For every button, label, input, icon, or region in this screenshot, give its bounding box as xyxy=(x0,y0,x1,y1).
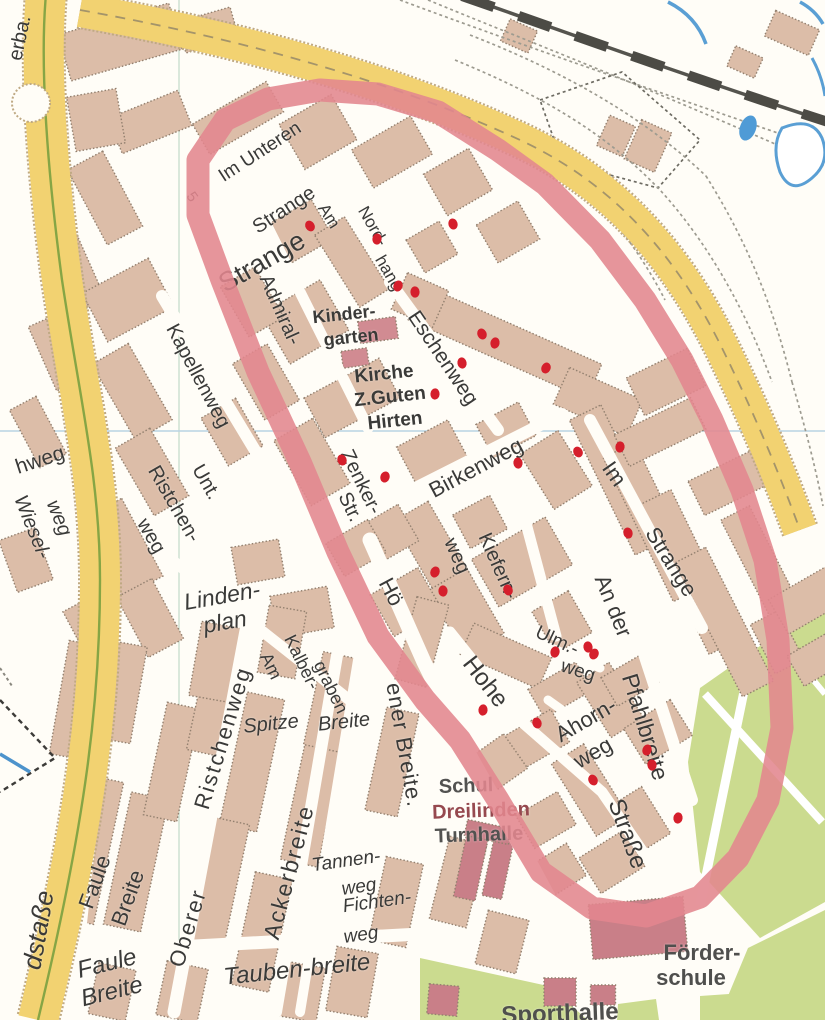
marker-dot xyxy=(502,583,515,597)
marker-dot xyxy=(429,565,442,579)
marker-dot xyxy=(430,388,440,400)
marker-dot xyxy=(531,716,543,730)
marker-dot xyxy=(478,704,488,716)
marker-dot xyxy=(379,470,391,483)
marker-dots xyxy=(303,217,683,824)
marker-dot xyxy=(641,743,653,756)
marker-dot xyxy=(622,526,634,539)
marker-dot xyxy=(513,457,523,469)
marker-dot xyxy=(303,219,317,233)
marker-dot xyxy=(673,812,684,825)
highlight-loop xyxy=(198,90,782,916)
marker-dot xyxy=(647,759,657,771)
annotation-overlay xyxy=(0,0,825,1020)
marker-dot xyxy=(336,453,348,467)
marker-dot xyxy=(372,233,382,245)
marker-dot xyxy=(392,279,405,293)
marker-dot xyxy=(615,441,626,453)
scanned-map: erba.5Im UnterenStrangeStrangeAmNord-han… xyxy=(0,0,825,1020)
marker-dot xyxy=(489,337,500,350)
marker-dot xyxy=(549,646,560,659)
marker-dot xyxy=(586,773,599,787)
marker-dot xyxy=(456,357,467,370)
marker-dot xyxy=(571,445,584,459)
marker-dot xyxy=(438,585,447,596)
marker-dot xyxy=(539,361,552,375)
marker-dot xyxy=(475,327,488,341)
marker-dot xyxy=(447,217,459,230)
marker-dot xyxy=(410,286,420,298)
